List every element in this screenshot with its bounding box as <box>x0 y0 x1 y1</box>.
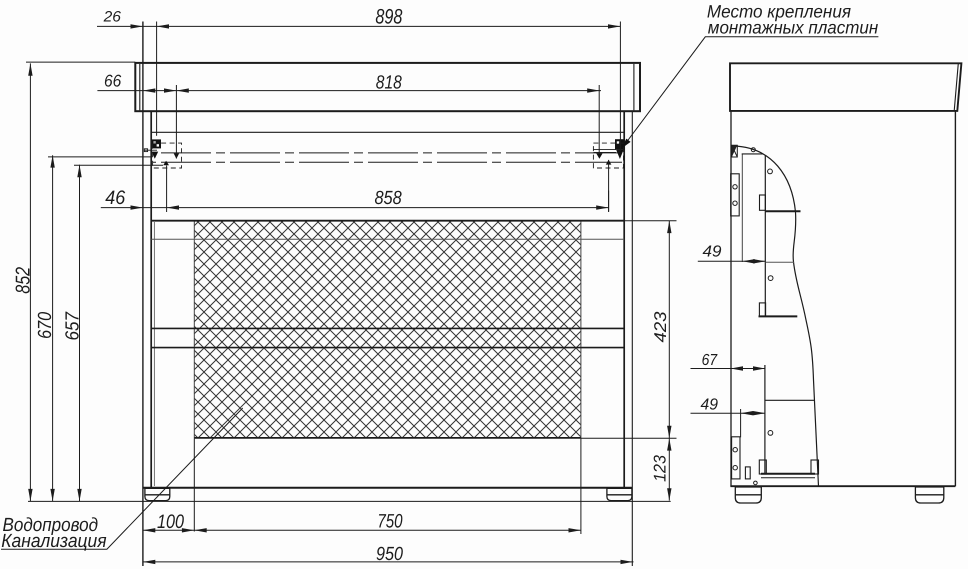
svg-text:123: 123 <box>651 455 670 482</box>
svg-text:49: 49 <box>703 244 722 261</box>
svg-text:950: 950 <box>376 544 403 565</box>
svg-text:46: 46 <box>105 187 125 209</box>
svg-text:26: 26 <box>103 9 122 26</box>
svg-text:монтажных пластин: монтажных пластин <box>708 18 878 38</box>
svg-text:670: 670 <box>35 312 56 339</box>
svg-text:657: 657 <box>63 311 84 341</box>
svg-text:898: 898 <box>375 6 402 29</box>
svg-text:858: 858 <box>374 188 402 209</box>
svg-text:750: 750 <box>377 510 402 532</box>
svg-text:423: 423 <box>651 311 670 343</box>
svg-text:66: 66 <box>104 72 122 91</box>
svg-text:852: 852 <box>12 267 34 294</box>
svg-text:818: 818 <box>376 72 402 93</box>
svg-text:100: 100 <box>157 511 184 533</box>
svg-text:67: 67 <box>702 352 718 369</box>
svg-text:49: 49 <box>701 397 719 414</box>
